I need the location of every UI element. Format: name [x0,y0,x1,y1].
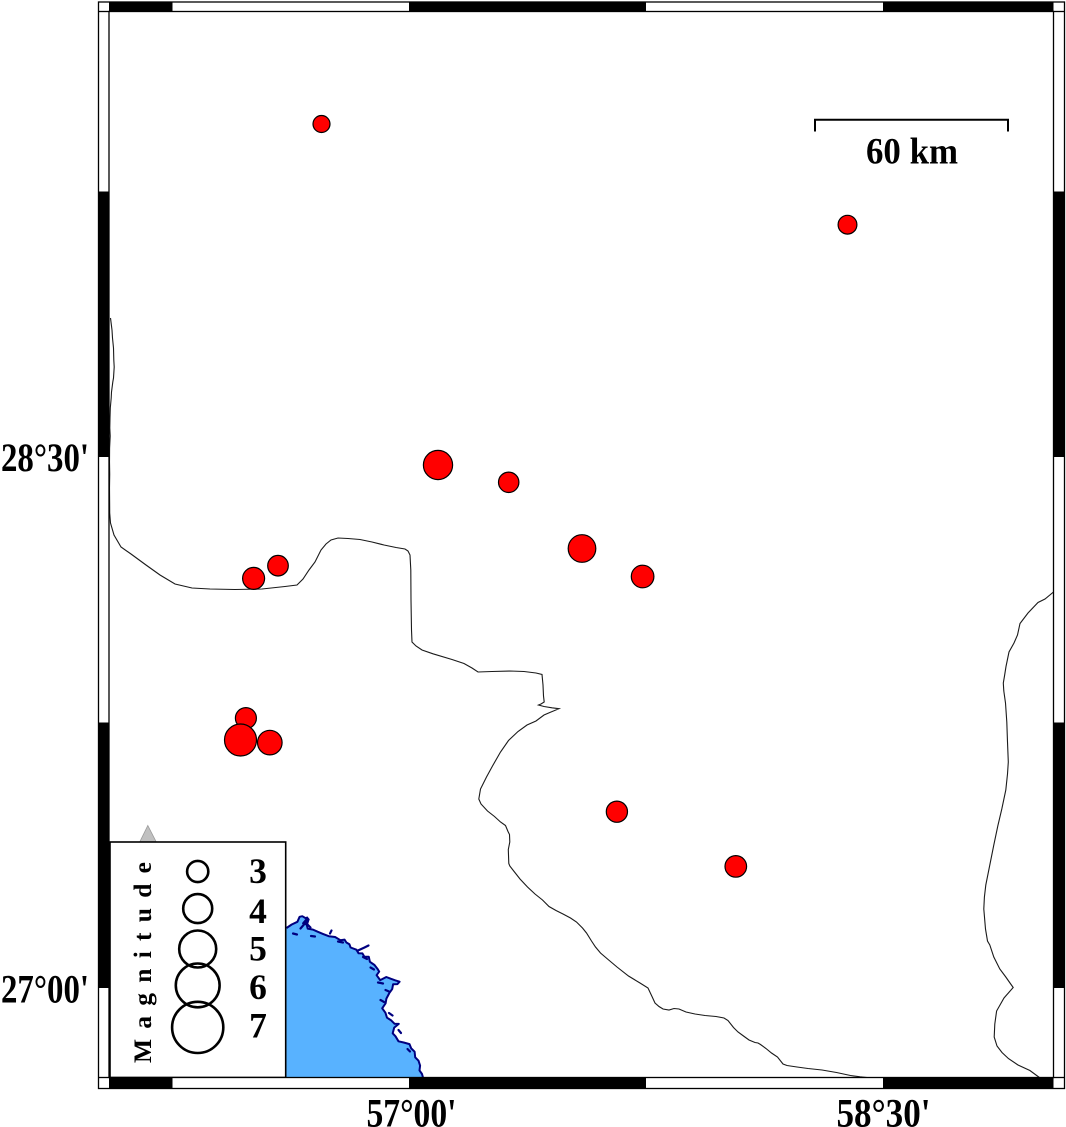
svg-text:28°30': 28°30' [1,435,89,480]
svg-text:57°00': 57°00' [367,1091,457,1127]
svg-text:7: 7 [249,1006,267,1046]
svg-text:60 km: 60 km [866,132,958,173]
svg-text:4: 4 [249,891,267,931]
svg-text:3: 3 [249,851,267,891]
svg-text:Magnitude: Magnitude [128,853,157,1063]
svg-text:27°00': 27°00' [1,967,89,1012]
svg-text:6: 6 [249,967,267,1007]
svg-text:58°30': 58°30' [837,1091,931,1127]
svg-text:5: 5 [249,929,267,969]
